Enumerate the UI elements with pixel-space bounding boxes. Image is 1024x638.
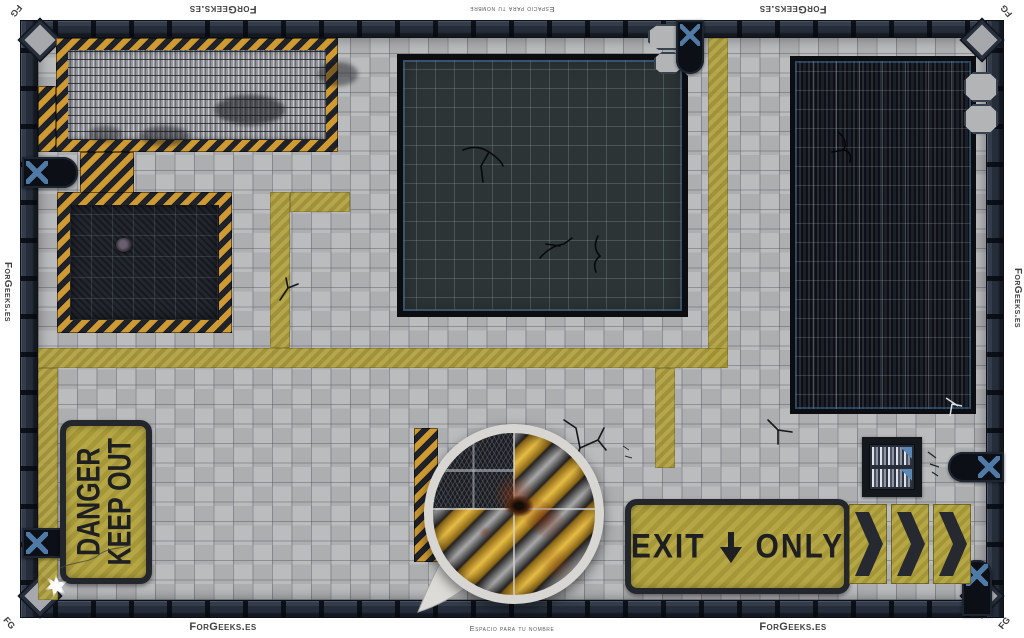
blood-drop bbox=[478, 527, 492, 537]
danger-line2: KEEP OUT bbox=[106, 438, 137, 565]
magnifier-lens bbox=[424, 424, 604, 604]
paint-line-vertical-center bbox=[708, 38, 728, 368]
only-word: ONLY bbox=[756, 527, 845, 566]
door-marker-icon bbox=[26, 161, 74, 184]
paint-line-horizontal bbox=[38, 348, 728, 368]
exit-word: EXIT bbox=[631, 527, 706, 566]
corner-logo-bottom-left: FG bbox=[1, 615, 17, 631]
name-placeholder-bottom: Espacio para tu nombre bbox=[427, 624, 597, 633]
scorch-smudge bbox=[318, 62, 358, 86]
danger-keep-out-sign: DANGER KEEP OUT bbox=[60, 420, 152, 584]
right-chevron-icon bbox=[891, 504, 929, 584]
chevron-sign bbox=[849, 504, 973, 586]
door-marker-icon bbox=[952, 456, 1000, 478]
corner-logo-top-left: FG bbox=[8, 3, 24, 19]
concrete-pit-platform bbox=[397, 54, 688, 317]
paint-line-stub-top bbox=[290, 192, 350, 212]
brand-left-edge: ForGeeks.es bbox=[2, 262, 13, 322]
tread-plate-platform bbox=[57, 192, 232, 333]
down-arrow-icon bbox=[718, 529, 744, 564]
right-chevron-icon bbox=[849, 504, 887, 584]
brand-top-right: ForGeeks.es bbox=[738, 3, 848, 15]
magnifier-callout bbox=[424, 424, 604, 604]
battle-map-sheet: ForGeeks.es Espacio para tu nombre ForGe… bbox=[0, 0, 1024, 638]
terminal-screen bbox=[869, 444, 915, 490]
brand-bottom-left: ForGeeks.es bbox=[168, 621, 278, 633]
paint-line-left-wall bbox=[38, 368, 58, 600]
door-top bbox=[676, 20, 704, 74]
brand-right-edge: ForGeeks.es bbox=[1012, 268, 1023, 328]
terminal-module bbox=[872, 469, 912, 487]
danger-sign-text: DANGER KEEP OUT bbox=[75, 438, 137, 565]
brand-top-left: ForGeeks.es bbox=[168, 3, 278, 15]
door-right bbox=[948, 452, 1004, 482]
wall-top bbox=[20, 20, 1004, 38]
right-chevron-icon bbox=[933, 504, 971, 584]
corner-logo-top-right: FG bbox=[998, 3, 1014, 19]
exit-only-sign: EXIT ONLY bbox=[625, 499, 850, 594]
door-marker-icon bbox=[680, 24, 700, 70]
door-left-upper bbox=[22, 157, 78, 188]
drain-detail bbox=[116, 238, 132, 252]
paint-line-vertical-left bbox=[270, 192, 290, 348]
blood-stain bbox=[537, 550, 577, 578]
octagon-hatch bbox=[964, 72, 998, 102]
name-placeholder-top: Espacio para tu nombre bbox=[427, 5, 597, 14]
scorch-smudge bbox=[140, 126, 190, 146]
terminal-module bbox=[872, 447, 912, 465]
hazard-wedge-left bbox=[38, 86, 56, 152]
server-grate-platform bbox=[790, 56, 976, 414]
paint-line-vertical-exit bbox=[655, 368, 675, 468]
scorch-smudge bbox=[215, 95, 285, 125]
exit-sign-text: EXIT ONLY bbox=[631, 527, 844, 566]
brand-bottom-right: ForGeeks.es bbox=[738, 621, 848, 633]
bullet-hole bbox=[504, 495, 534, 517]
octagon-hatch bbox=[964, 104, 998, 134]
control-panel-terminal bbox=[862, 437, 922, 497]
scorch-smudge bbox=[88, 126, 122, 142]
tread-plate-surface bbox=[70, 205, 219, 320]
